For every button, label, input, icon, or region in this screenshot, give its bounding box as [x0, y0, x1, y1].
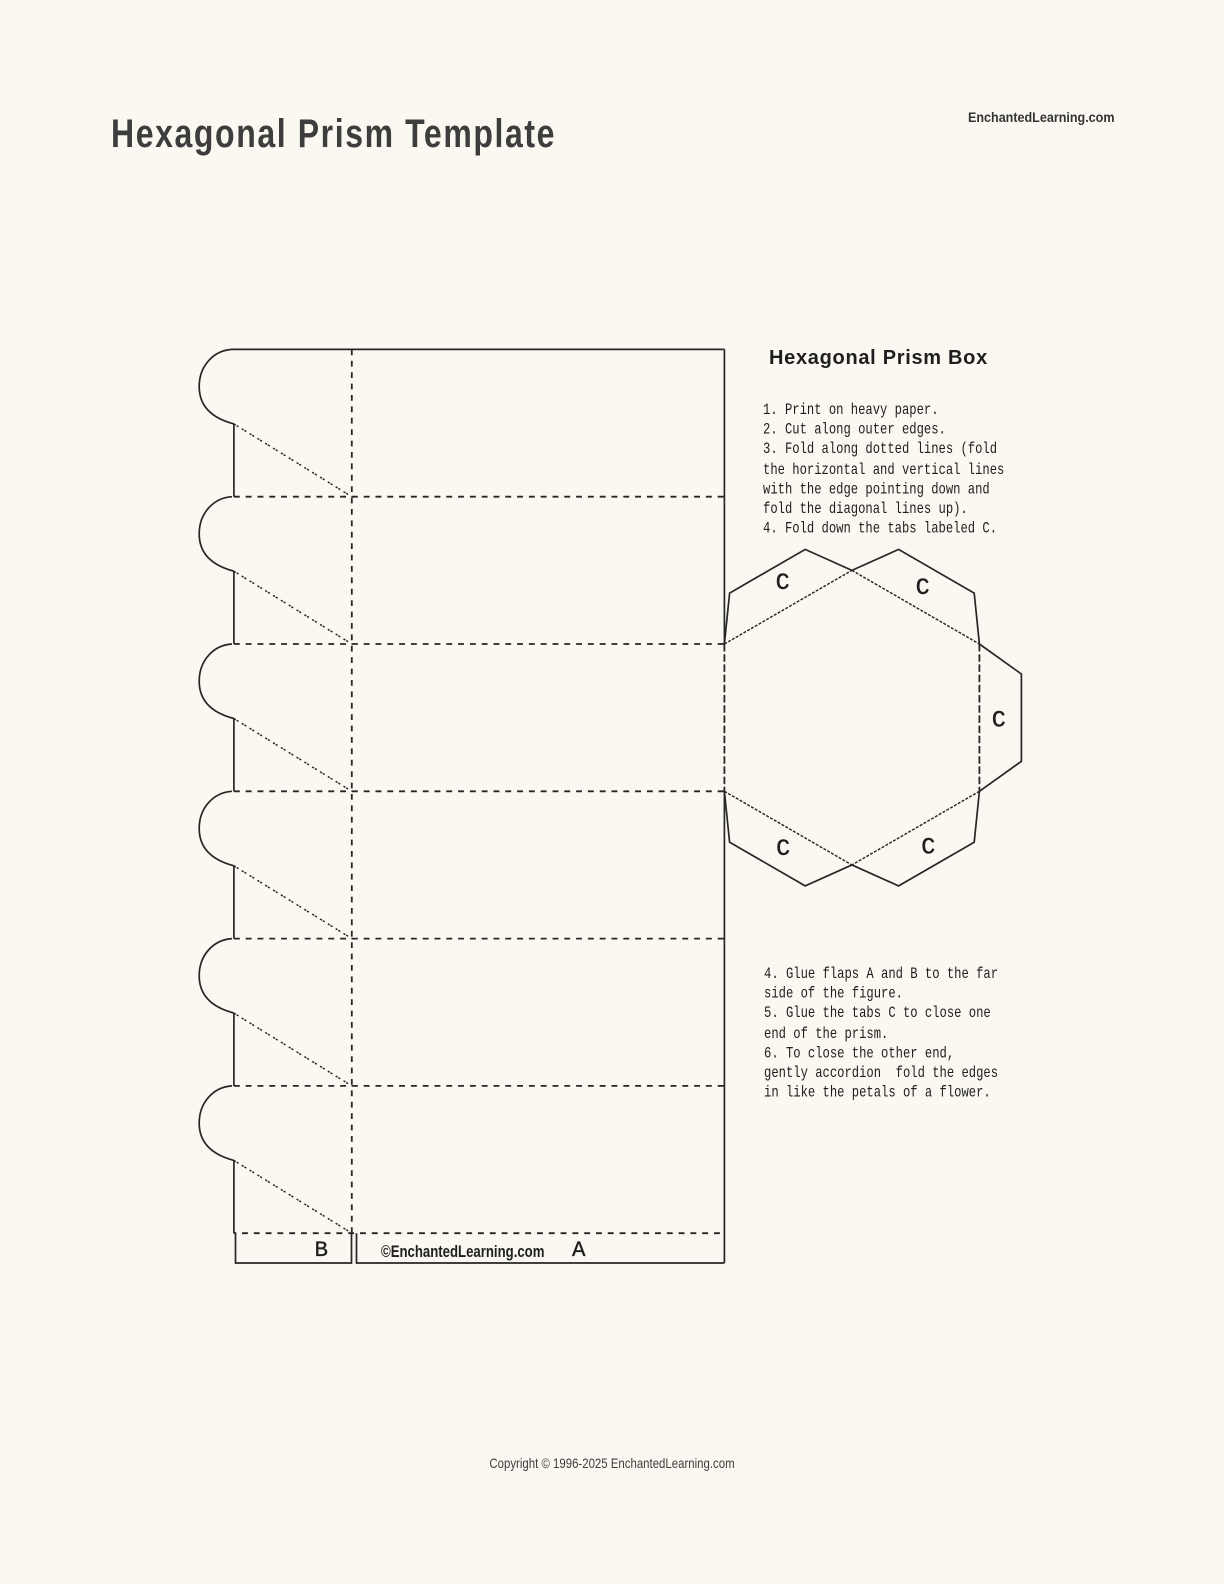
svg-text:C: C: [992, 708, 1006, 734]
svg-text:C: C: [921, 834, 935, 860]
svg-text:C: C: [916, 575, 930, 601]
svg-text:C: C: [776, 570, 790, 596]
svg-text:C: C: [776, 836, 790, 862]
